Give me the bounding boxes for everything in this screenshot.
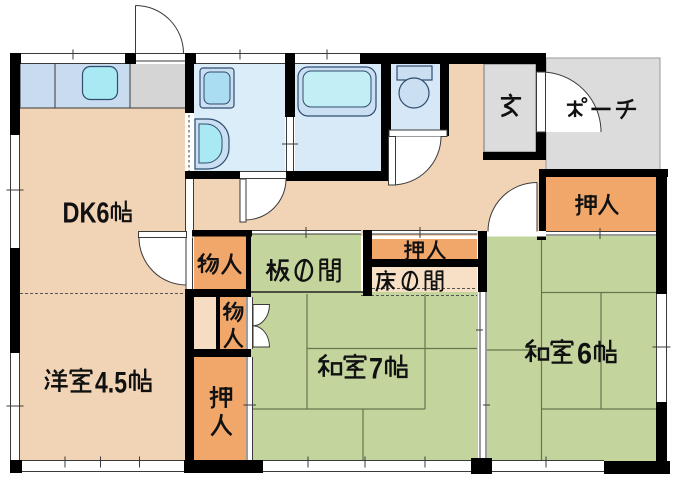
svg-text:6: 6 [577, 338, 592, 371]
svg-text:DK6: DK6 [63, 198, 110, 230]
svg-text:4.5: 4.5 [95, 367, 127, 400]
svg-text:7: 7 [369, 353, 383, 386]
